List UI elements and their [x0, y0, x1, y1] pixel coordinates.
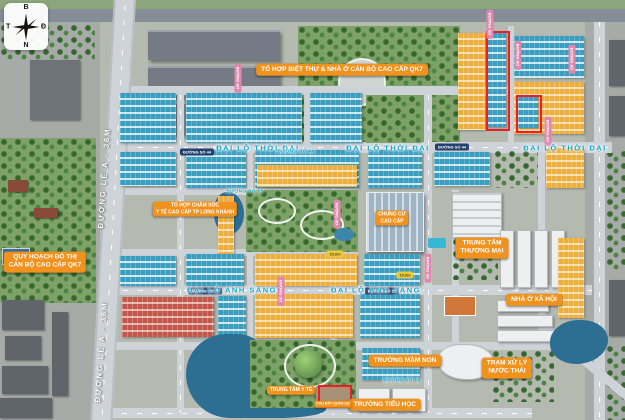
social-housing-slab [517, 230, 531, 288]
label-medical-complex: TỔ HỢP CHĂM SÓC Y TẾ CAO CẤP TP LONG KHÁ… [153, 202, 237, 217]
label-primary-school: TRƯỜNG TIỂU HỌC [349, 399, 421, 411]
old-town-building [2, 300, 44, 330]
compass-bottom-letter: N [23, 42, 28, 49]
qk7-tower [148, 30, 280, 60]
apartment-pool [428, 238, 446, 248]
road-width-pill: 15,0m [326, 251, 343, 258]
trees-band-b [494, 150, 538, 188]
compass-right-letter: Đ [41, 23, 46, 30]
highlight-block-1 [486, 31, 510, 131]
road-label-so-44: ĐƯỜNG SỐ 44 [277, 149, 314, 154]
sports-court [444, 296, 476, 316]
road-label-thoi-dai: ĐẠI LỘ THỜI ĐẠI [346, 144, 429, 153]
label-wastewater-plant: TRẠM XỬ LÝ NƯỚC THẢI [482, 358, 532, 379]
shophouse-block [186, 93, 302, 143]
road-label-so-13: ĐƯỜNG SỐ 13 [226, 189, 263, 194]
social-housing-slab [497, 315, 553, 327]
label-villa-complex-qk7: TỔ HỢP BIỆT THỰ & NHÀ Ở CÁN BỘ CAO CẤP Q… [256, 64, 428, 76]
park-path [258, 198, 296, 224]
label-military-plot: KHU ĐẤT QUÂN SỰ [314, 401, 351, 408]
right-building [609, 96, 625, 136]
left-pavilion [8, 180, 28, 192]
road-number-pill: ĐƯỜNG SỐ [515, 41, 522, 70]
road-number-pill: ĐƯỜNG SỐ [235, 64, 242, 93]
left-pavilion [34, 208, 58, 218]
shophouse-block [186, 150, 246, 188]
label-trade-center: TRUNG TÂM THƯƠNG MẠI [455, 238, 508, 259]
label-urban-planning-qk7: QUY HOẠCH ĐÔ THỊ CÁN BỘ CAO CẤP QK7 [4, 252, 86, 273]
compass-left-letter: T [6, 23, 10, 30]
social-housing-slab [497, 330, 557, 342]
road-number-pill: ĐƯỜNG SỐ [425, 254, 432, 283]
road-label-anh-sang: ĐẠI LỘ ÁNH SÁNG [187, 286, 277, 295]
road-label-so-16: ĐƯỜNG SỐ 16 [383, 378, 420, 383]
right-trees [606, 150, 625, 270]
shophouse-block [186, 254, 244, 286]
shophouse-block [120, 256, 176, 286]
highlight-block-2 [516, 95, 542, 133]
label-kindergarten: TRƯỜNG MẦM NON [369, 355, 442, 367]
shophouse-block [310, 93, 362, 143]
social-housing-slab [534, 230, 548, 288]
shophouse-block [120, 93, 176, 143]
shophouse-block [368, 150, 422, 188]
shophouse-block [255, 294, 353, 338]
road-number-pill: ĐƯỜNG SỐ [487, 10, 494, 39]
old-town-building [52, 312, 68, 396]
top-boundary-road [0, 9, 625, 22]
old-town-building [0, 398, 52, 418]
right-building [609, 280, 625, 336]
top-green-strip [0, 0, 625, 9]
old-town-building [5, 336, 41, 360]
road-number-pill: ĐƯỜNG SỐ 44 [435, 144, 469, 151]
road-v1 [177, 95, 184, 413]
shophouse-block [546, 148, 584, 188]
shophouse-block [360, 294, 420, 338]
park-ring-path [284, 344, 336, 388]
road-number-pill: ĐƯỜNG SỐ [545, 117, 552, 146]
shophouse-block [120, 152, 176, 186]
shophouse-block [218, 296, 246, 338]
shophouse-block [558, 238, 584, 318]
right-building [609, 40, 625, 86]
label-medical-center: TRUNG TÂM Y TẾ [267, 386, 315, 395]
compass-rose: B Đ N T [4, 3, 48, 50]
old-town-building [2, 366, 48, 394]
label-social-housing: NHÀ Ở XÃ HỘI [506, 294, 562, 306]
old-town-building [30, 60, 80, 120]
road-number-pill: ĐƯỜNG SỐ 44 [180, 149, 214, 156]
road-label-anh-sang: ĐẠI LỘ ÁNH SÁNG [331, 286, 421, 295]
road-width-pill: 15,0m [396, 272, 413, 279]
right-boundary-road [594, 22, 605, 420]
road-number-pill: ĐƯỜNG SỐ [334, 200, 341, 229]
park-pond [334, 228, 354, 241]
compass-star-icon [11, 12, 41, 42]
road-label-thoi-dai: ĐẠI LỘ THỜI ĐẠI [523, 144, 606, 153]
trade-center-building [452, 192, 502, 238]
left-park [0, 138, 96, 303]
road-number-pill: ĐƯỜNG SỐ [569, 45, 576, 74]
compass-top-letter: B [23, 4, 28, 11]
shophouse-block [255, 254, 357, 286]
shophouse-block [434, 152, 490, 186]
road-number-pill: ĐƯỜNG SỐ [278, 277, 285, 306]
shophouse-block [364, 254, 420, 286]
masterplan-canvas: ĐƯỜNG SỐ ĐƯỜNG SỐ ĐƯỜNG SỐ ĐƯỜNG SỐ ĐƯỜN… [0, 0, 625, 420]
trees-band-a [366, 95, 422, 143]
shophouse-block [257, 165, 357, 187]
shophouse-block [458, 33, 485, 130]
villa-block [122, 297, 214, 337]
label-luxury-apartment: CHUNG CƯ CAO CẤP [375, 211, 408, 226]
